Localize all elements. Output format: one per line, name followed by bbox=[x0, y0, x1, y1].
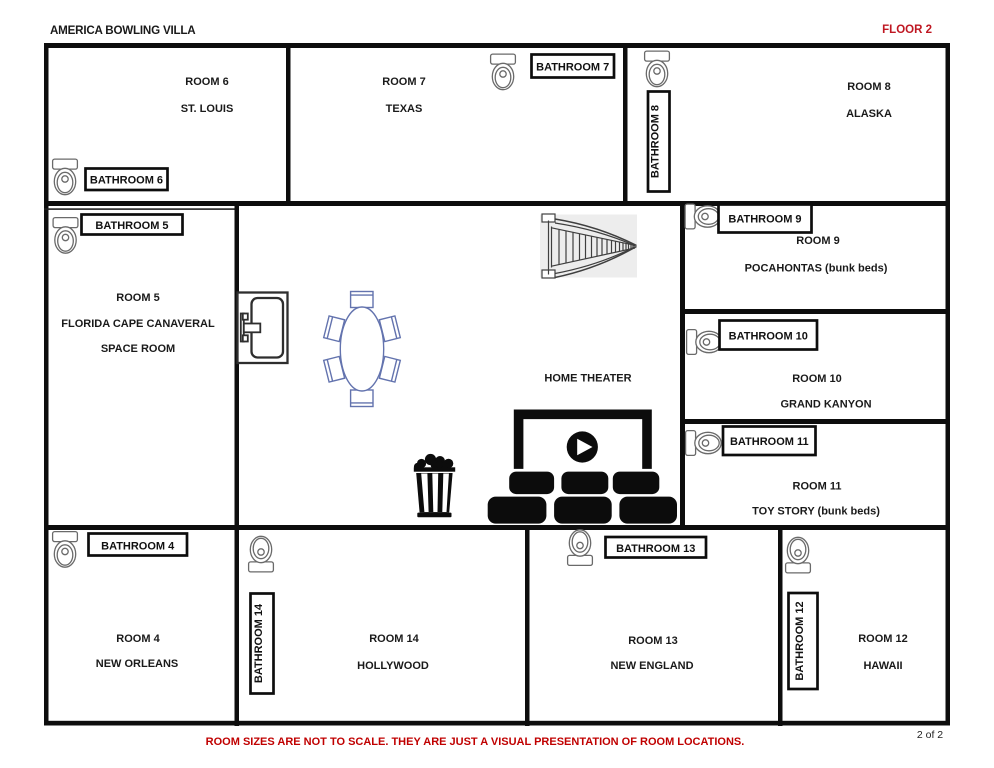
svg-text:ROOM 9: ROOM 9 bbox=[796, 235, 839, 247]
svg-text:BATHROOM 8: BATHROOM 8 bbox=[650, 105, 662, 178]
svg-text:POCAHONTAS (bunk beds): POCAHONTAS (bunk beds) bbox=[745, 263, 888, 275]
svg-text:ST. LOUIS: ST. LOUIS bbox=[181, 103, 234, 115]
svg-text:BATHROOM 5: BATHROOM 5 bbox=[95, 220, 168, 232]
svg-text:GRAND KANYON: GRAND KANYON bbox=[780, 399, 871, 411]
svg-text:ALASKA: ALASKA bbox=[846, 108, 892, 120]
svg-text:ROOM 13: ROOM 13 bbox=[628, 635, 678, 647]
svg-text:FLORIDA CAPE CANAVERAL: FLORIDA CAPE CANAVERAL bbox=[61, 318, 215, 330]
svg-text:ROOM SIZES ARE NOT TO SCALE. T: ROOM SIZES ARE NOT TO SCALE. THEY ARE JU… bbox=[206, 736, 745, 748]
svg-text:AMERICA BOWLING VILLA: AMERICA BOWLING VILLA bbox=[50, 24, 196, 37]
svg-text:NEW ORLEANS: NEW ORLEANS bbox=[96, 658, 179, 670]
svg-text:HAWAII: HAWAII bbox=[863, 660, 902, 672]
svg-text:ROOM 6: ROOM 6 bbox=[185, 76, 228, 88]
svg-text:ROOM 12: ROOM 12 bbox=[858, 633, 908, 645]
svg-text:BATHROOM 4: BATHROOM 4 bbox=[101, 541, 175, 553]
svg-text:TOY STORY (bunk beds): TOY STORY (bunk beds) bbox=[752, 506, 880, 518]
svg-text:ROOM 7: ROOM 7 bbox=[382, 76, 425, 88]
svg-text:HOLLYWOOD: HOLLYWOOD bbox=[357, 660, 429, 672]
svg-text:NEW ENGLAND: NEW ENGLAND bbox=[610, 660, 693, 672]
svg-text:BATHROOM 6: BATHROOM 6 bbox=[90, 175, 163, 187]
svg-text:BATHROOM 10: BATHROOM 10 bbox=[729, 331, 808, 343]
svg-text:ROOM 5: ROOM 5 bbox=[116, 292, 159, 304]
svg-text:BATHROOM 13: BATHROOM 13 bbox=[616, 543, 695, 555]
svg-text:ROOM 11: ROOM 11 bbox=[793, 481, 842, 493]
svg-text:HOME THEATER: HOME THEATER bbox=[544, 373, 631, 385]
svg-text:ROOM 14: ROOM 14 bbox=[369, 633, 419, 645]
svg-text:BATHROOM 9: BATHROOM 9 bbox=[728, 214, 801, 226]
svg-text:BATHROOM 11: BATHROOM 11 bbox=[730, 436, 809, 448]
svg-text:FLOOR 2: FLOOR 2 bbox=[882, 24, 932, 36]
svg-text:BATHROOM 7: BATHROOM 7 bbox=[536, 62, 609, 74]
svg-text:BATHROOM 14: BATHROOM 14 bbox=[253, 603, 265, 683]
svg-text:TEXAS: TEXAS bbox=[386, 103, 423, 115]
svg-text:ROOM 10: ROOM 10 bbox=[792, 373, 842, 385]
svg-text:ROOM 8: ROOM 8 bbox=[847, 81, 890, 93]
svg-text:BATHROOM 12: BATHROOM 12 bbox=[794, 601, 806, 680]
svg-text:SPACE ROOM: SPACE ROOM bbox=[101, 343, 175, 355]
svg-text:ROOM 4: ROOM 4 bbox=[116, 633, 160, 645]
svg-text:2 of 2: 2 of 2 bbox=[917, 729, 943, 741]
